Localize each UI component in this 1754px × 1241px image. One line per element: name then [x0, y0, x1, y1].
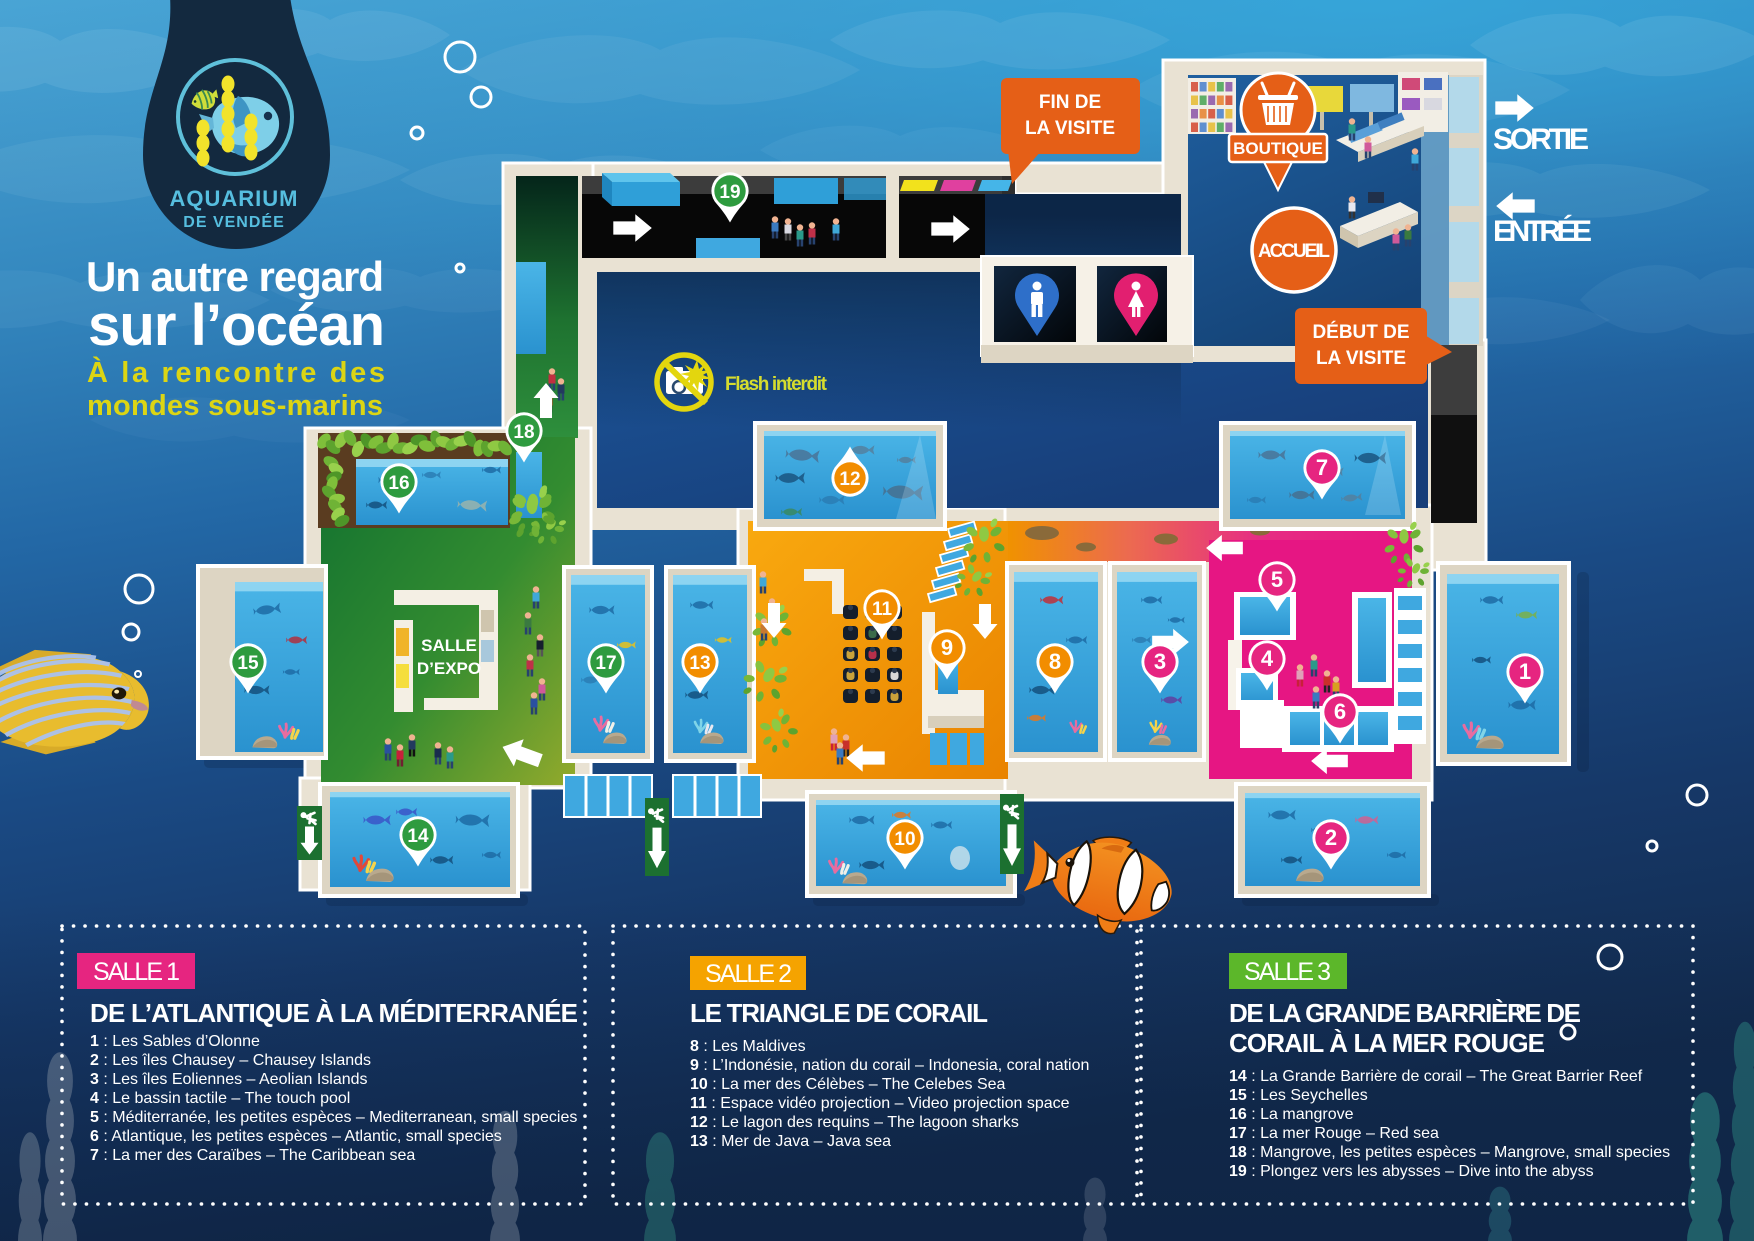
svg-text:5: 5 — [1271, 567, 1283, 592]
svg-text:BOUTIQUE: BOUTIQUE — [1233, 139, 1323, 158]
svg-text:14: 14 — [407, 826, 429, 847]
svg-text:12: 12 — [839, 469, 860, 490]
svg-text:6 : Atlantique, les petites es: 6 : Atlantique, les petites espèces – At… — [90, 1128, 502, 1145]
svg-text:CORAIL À LA MER ROUGE: CORAIL À LA MER ROUGE — [1229, 1028, 1545, 1058]
svg-text:mondes sous-marins: mondes sous-marins — [87, 390, 383, 422]
svg-text:11 : Espace vidéo projection –: 11 : Espace vidéo projection – Video pro… — [690, 1095, 1070, 1112]
svg-text:LA VISITE: LA VISITE — [1025, 118, 1115, 139]
svg-text:1: 1 — [1519, 659, 1531, 684]
svg-text:13: 13 — [689, 653, 710, 674]
svg-text:11: 11 — [872, 599, 893, 620]
svg-text:FIN DE: FIN DE — [1039, 92, 1101, 113]
svg-text:3: 3 — [1154, 649, 1166, 674]
svg-text:17 : La mer Rouge – Red sea: 17 : La mer Rouge – Red sea — [1229, 1125, 1439, 1142]
svg-text:10 : La mer des Célèbes – The: 10 : La mer des Célèbes – The Celebes Se… — [690, 1076, 1006, 1093]
svg-text:8: 8 — [1049, 649, 1061, 674]
svg-text:SALLE: SALLE — [421, 636, 477, 655]
svg-text:AQUARIUM: AQUARIUM — [170, 186, 299, 211]
svg-text:17: 17 — [595, 653, 616, 674]
svg-text:LE TRIANGLE DE CORAIL: LE TRIANGLE DE CORAIL — [690, 998, 988, 1028]
svg-text:SORTIE: SORTIE — [1493, 123, 1589, 156]
svg-text:8 : Les Maldives: 8 : Les Maldives — [690, 1038, 806, 1055]
svg-text:10: 10 — [894, 829, 915, 850]
svg-text:18: 18 — [513, 422, 534, 443]
svg-text:18 : Mangrove, les petites esp: 18 : Mangrove, les petites espèces – Man… — [1229, 1144, 1670, 1161]
svg-text:9 : L’Indonésie, nation du cor: 9 : L’Indonésie, nation du corail – Indo… — [690, 1057, 1089, 1074]
svg-text:DE LA GRANDE BARRIÈRE DE: DE LA GRANDE BARRIÈRE DE — [1229, 998, 1581, 1028]
svg-text:19: 19 — [719, 182, 740, 203]
svg-text:DE L’ATLANTIQUE À LA MÉDITERRA: DE L’ATLANTIQUE À LA MÉDITERRANÉE — [90, 998, 578, 1028]
svg-text:6: 6 — [1334, 699, 1346, 724]
svg-text:4: 4 — [1261, 646, 1274, 671]
svg-text:13 : Mer de Java – Java sea: 13 : Mer de Java – Java sea — [690, 1133, 891, 1150]
svg-text:SALLE 2: SALLE 2 — [705, 960, 792, 988]
svg-text:7: 7 — [1316, 455, 1328, 480]
svg-text:19 : Plongez vers les abysses: 19 : Plongez vers les abysses – Dive int… — [1229, 1163, 1594, 1180]
svg-text:SALLE 1: SALLE 1 — [93, 958, 180, 986]
svg-text:ACCUEIL: ACCUEIL — [1258, 241, 1330, 262]
svg-text:sur l’océan: sur l’océan — [88, 293, 385, 358]
svg-text:Flash interdit: Flash interdit — [725, 374, 828, 395]
svg-text:2 : Les îles Chausey – Chausey: 2 : Les îles Chausey – Chausey Islands — [90, 1052, 371, 1069]
svg-text:5 : Méditerranée, les petites: 5 : Méditerranée, les petites espèces – … — [90, 1109, 577, 1126]
svg-text:15 : Les Seychelles: 15 : Les Seychelles — [1229, 1087, 1368, 1104]
svg-text:D’EXPO: D’EXPO — [417, 659, 481, 678]
svg-text:15: 15 — [237, 653, 259, 674]
svg-text:DÉBUT DE: DÉBUT DE — [1312, 321, 1409, 343]
svg-text:4 : Le bassin tactile – The to: 4 : Le bassin tactile – The touch pool — [90, 1090, 350, 1107]
svg-text:2: 2 — [1325, 825, 1337, 850]
svg-text:7 : La mer des Caraïbes – The: 7 : La mer des Caraïbes – The Caribbean … — [90, 1147, 415, 1164]
svg-text:LA VISITE: LA VISITE — [1316, 348, 1406, 369]
svg-text:14 : La Grande Barrière de cor: 14 : La Grande Barrière de corail – The … — [1229, 1068, 1643, 1085]
svg-text:À la rencontre des: À la rencontre des — [87, 355, 385, 389]
svg-text:3 : Les îles Eoliennes – Aeoli: 3 : Les îles Eoliennes – Aeolian Islands — [90, 1071, 368, 1088]
svg-text:12 : Le lagon des requins – Th: 12 : Le lagon des requins – The lagoon s… — [690, 1114, 1019, 1131]
svg-text:ENTRÉE: ENTRÉE — [1493, 214, 1592, 248]
svg-text:9: 9 — [941, 635, 953, 660]
svg-text:16 : La mangrove: 16 : La mangrove — [1229, 1106, 1354, 1123]
svg-text:1 : Les Sables d’Olonne: 1 : Les Sables d’Olonne — [90, 1033, 260, 1050]
svg-text:SALLE 3: SALLE 3 — [1244, 958, 1331, 986]
svg-text:DE VENDÉE: DE VENDÉE — [183, 212, 284, 231]
svg-text:16: 16 — [388, 473, 409, 494]
